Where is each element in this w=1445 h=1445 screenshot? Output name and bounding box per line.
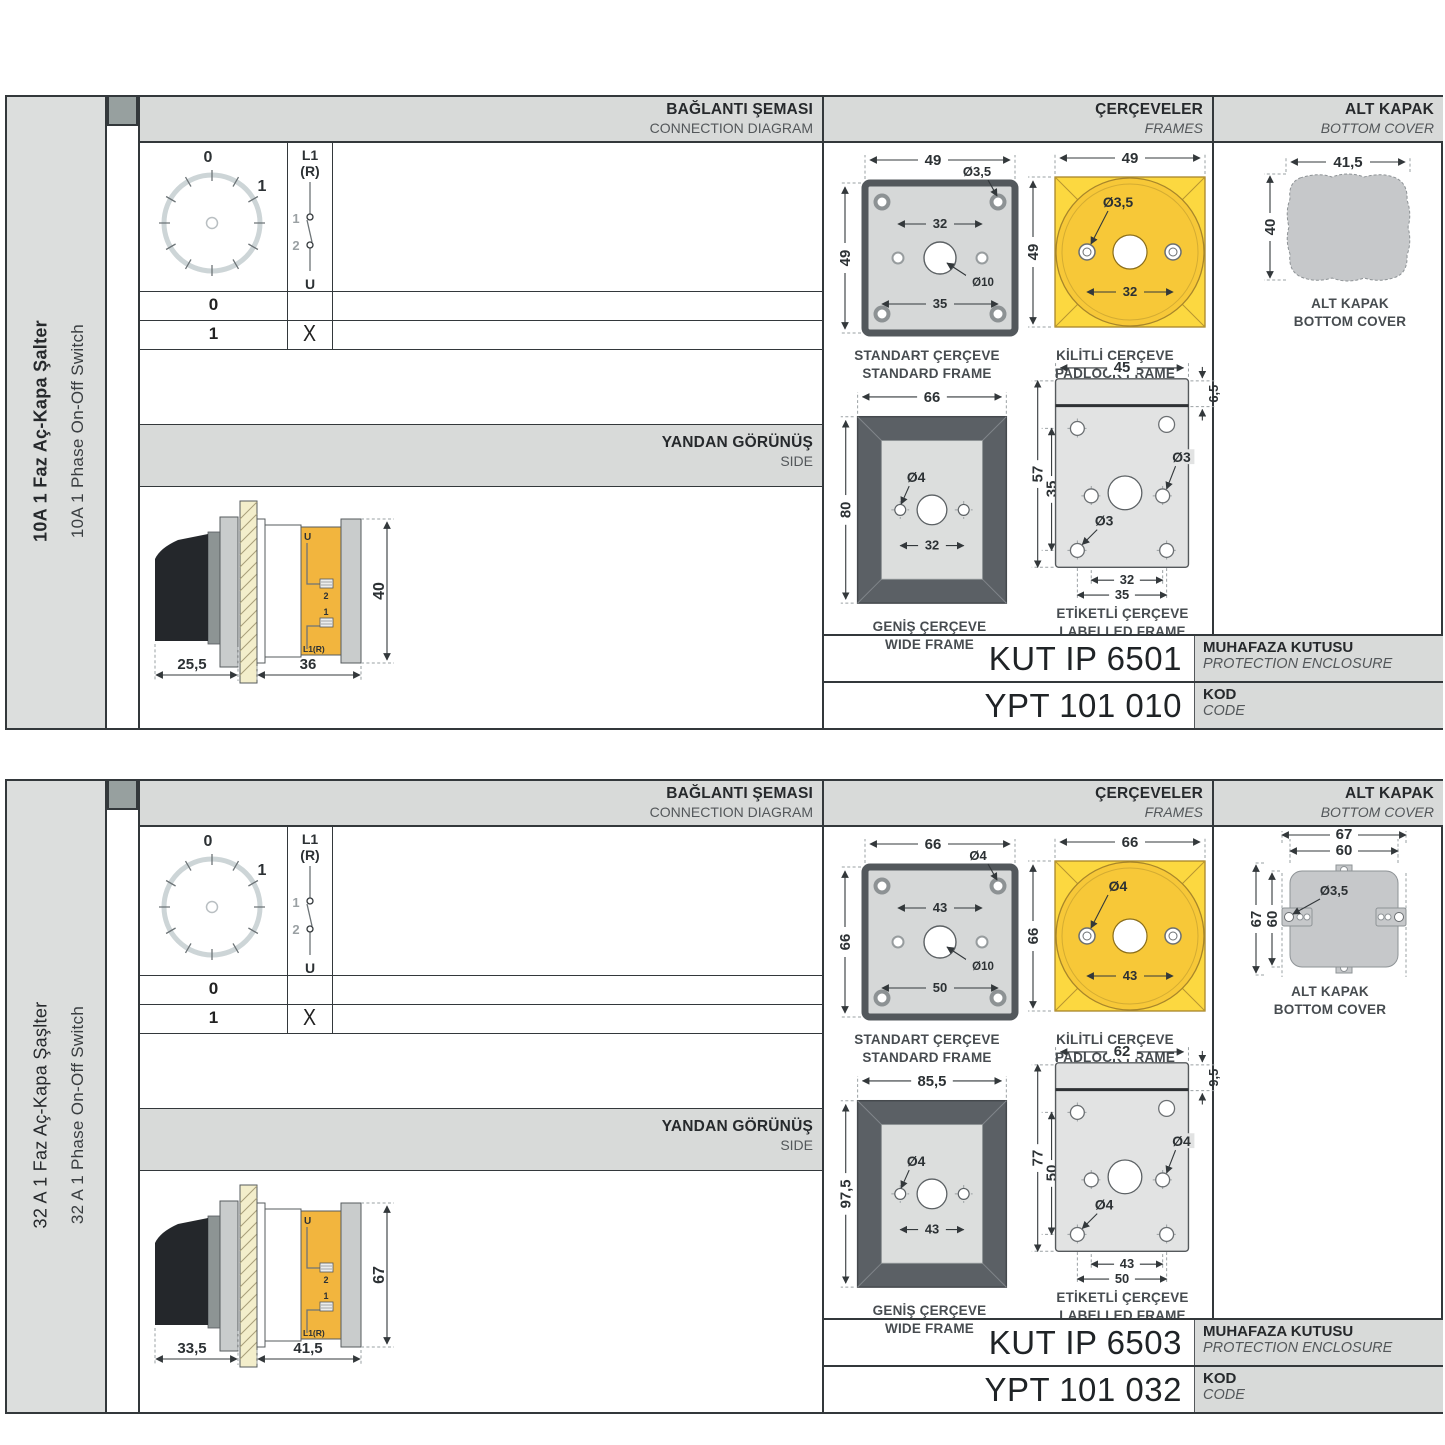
- terminal-l1r: L1(R): [303, 644, 325, 654]
- padlock-frame-drawing: 49 49 Ø3,5 32: [1020, 147, 1210, 343]
- dim-front-depth: 33,5: [177, 1340, 206, 1357]
- table-row-0-position: 0: [140, 291, 287, 320]
- side-view-header: YANDAN GÖRÜNÜŞ SIDE: [140, 424, 822, 487]
- dim-width: 85,5: [918, 1074, 947, 1090]
- terminal-r-label: (R): [300, 847, 319, 863]
- table-row-1-mark: X: [290, 1004, 328, 1033]
- label-en: CODE: [1203, 1387, 1443, 1403]
- header-tr: ÇERÇEVELER: [822, 101, 1203, 119]
- header-en: SIDE: [140, 1137, 813, 1153]
- product-section-32a: 32 A 1 Faz Aç-Kapa Şaşlter 32 A 1 Phase …: [5, 779, 1443, 1414]
- dim-width: 41,5: [1333, 154, 1362, 171]
- header-tr: BAĞLANTI ŞEMASI: [140, 785, 813, 803]
- dim-width: 66: [1122, 834, 1139, 851]
- switch-symbol: L1 (R) 1 2 U: [287, 143, 332, 291]
- bottom-cover-title: ALT KAPAK BOTTOM COVER: [1240, 983, 1420, 1018]
- header-tr: YANDAN GÖRÜNÜŞ: [140, 434, 813, 452]
- product-section-10a: 10A 1 Faz Aç-Kapa Şalter 10A 1 Phase On-…: [5, 95, 1443, 730]
- bottom-cover-title: ALT KAPAK BOTTOM COVER: [1260, 295, 1440, 330]
- labelled-frame-drawing: 45 6,5 57 35: [1025, 359, 1220, 602]
- center-hole: [917, 1179, 947, 1209]
- switch-symbol: L1 (R) 1 2 U: [287, 827, 332, 975]
- enclosure-code: KUT IP 6503: [822, 1320, 1194, 1365]
- front-plate: [220, 1201, 238, 1351]
- dial-position-1: 1: [258, 178, 267, 195]
- label-en: PROTECTION ENCLOSURE: [1203, 1340, 1443, 1356]
- product-title-tr-text: 32 A 1 Faz Aç-Kapa Şaşlter: [31, 1002, 52, 1229]
- dim-height-outer: 67: [1248, 911, 1265, 928]
- contact-2: [307, 242, 313, 248]
- label-en: PROTECTION ENCLOSURE: [1203, 656, 1443, 672]
- table-row-1-mark: X: [290, 320, 328, 349]
- contact-2: [307, 926, 313, 932]
- dim-label-strip: 9,5: [1206, 1069, 1221, 1087]
- screw-2: [320, 579, 333, 588]
- terminal-u: U: [304, 532, 311, 543]
- dim-label-strip: 6,5: [1206, 385, 1221, 403]
- title-tr: ETİKETLİ ÇERÇEVE: [1025, 605, 1220, 623]
- product-label-column: 10A 1 Faz Aç-Kapa Şalter 10A 1 Phase On-…: [7, 97, 107, 728]
- standard-frame-drawing: 66 66 Ø4 43: [832, 831, 1022, 1027]
- title-tr: STANDART ÇERÇEVE: [832, 347, 1022, 365]
- rotary-dial-diagram: 0 1: [142, 829, 285, 973]
- dim-hole-span: 32: [1123, 284, 1137, 299]
- center-hole: [924, 926, 956, 958]
- frame-body: [1056, 1063, 1189, 1251]
- dial-center: [207, 218, 218, 229]
- body: [265, 1209, 301, 1341]
- label-tr: KOD: [1203, 1370, 1443, 1387]
- product-title-en-text: 32 A 1 Phase On-Off Switch: [68, 1006, 88, 1224]
- contact-1: [307, 214, 313, 220]
- dim-height: 40: [371, 582, 388, 600]
- product-title-tr-text: 10A 1 Faz Aç-Kapa Şalter: [31, 320, 52, 542]
- header-en: FRAMES: [822, 120, 1203, 136]
- dim-width: 62: [1114, 1044, 1131, 1060]
- product-label-column: 32 A 1 Faz Aç-Kapa Şaşlter 32 A 1 Phase …: [7, 781, 107, 1412]
- dim-front-depth: 25,5: [177, 656, 206, 673]
- dim-width: 66: [924, 390, 941, 406]
- dial-position-0: 0: [204, 149, 213, 166]
- bottom-cover-drawing: 41,5 40: [1260, 152, 1440, 292]
- screw-1: [320, 1302, 333, 1311]
- header-en: CONNECTION DIAGRAM: [140, 120, 813, 136]
- dim-width: 66: [925, 836, 942, 853]
- rotary-dial-diagram: 0 1: [142, 145, 285, 289]
- center-hole: [1113, 919, 1147, 953]
- dim-hole: Ø4: [907, 469, 926, 485]
- dim-hole: Ø3,5: [1320, 883, 1348, 898]
- product-title-en-text: 10A 1 Phase On-Off Switch: [68, 324, 88, 538]
- dim-height: 40: [1262, 219, 1279, 236]
- header-en: BOTTOM COVER: [1212, 804, 1434, 820]
- wide-frame-drawing: 66 80 Ø4 32: [837, 385, 1022, 615]
- dim-hole: Ø4: [1109, 878, 1128, 894]
- standard-frame-drawing: 49 49 Ø3,5 32: [832, 147, 1022, 343]
- divider: [332, 827, 333, 1033]
- dim-hole-span: 32: [1120, 572, 1134, 587]
- title-tr: GENİŞ ÇERÇEVE: [837, 618, 1022, 636]
- body: [265, 525, 301, 657]
- enclosure-label: MUHAFAZA KUTUSU PROTECTION ENCLOSURE: [1194, 636, 1443, 681]
- standard-frame-title: STANDART ÇERÇEVE STANDARD FRAME: [832, 347, 1022, 382]
- center-hole: [924, 242, 956, 274]
- dim-hole-span: 43: [933, 900, 947, 915]
- header-tr: ALT KAPAK: [1212, 101, 1434, 119]
- dim-height: 66: [1025, 928, 1042, 945]
- terminal-l1r: L1(R): [303, 1328, 325, 1338]
- cover-body-group: [1282, 865, 1406, 973]
- dim-center-hole: Ø10: [972, 277, 994, 289]
- title-en: BOTTOM COVER: [1260, 313, 1440, 331]
- dim-height: 80: [839, 502, 855, 519]
- dim-hole: Ø3,5: [1103, 194, 1134, 210]
- dim-height: 97,5: [839, 1179, 855, 1208]
- catalog-page: 10A 1 Faz Aç-Kapa Şalter 10A 1 Phase On-…: [0, 0, 1445, 1445]
- table-row-1-position: 1: [140, 1004, 287, 1033]
- table-row-0-mark: [290, 291, 328, 320]
- table-row-0-position: 0: [140, 975, 287, 1004]
- section-content: BAĞLANTI ŞEMASI CONNECTION DIAGRAM ÇERÇE…: [138, 781, 1441, 1412]
- enclosure-row: KUT IP 6501 MUHAFAZA KUTUSU PROTECTION E…: [822, 634, 1443, 681]
- center-hole: [1108, 1160, 1142, 1194]
- dim-hole-left: Ø4: [1095, 1197, 1114, 1213]
- rear-plate: [341, 519, 361, 663]
- product-code-label: KOD CODE: [1194, 683, 1443, 728]
- terminal-l1-label: L1: [302, 831, 319, 847]
- dim-height: 49: [1025, 244, 1042, 261]
- title-en: STANDARD FRAME: [832, 365, 1022, 383]
- divider: [332, 143, 333, 349]
- wide-frame-drawing: 85,5 97,5 Ø4 43: [837, 1069, 1022, 1299]
- bottom-cover-header: ALT KAPAK BOTTOM COVER: [1212, 97, 1443, 143]
- dim-hole-right: Ø4: [1172, 1133, 1191, 1149]
- handle: [155, 534, 208, 641]
- enclosure-label: MUHAFAZA KUTUSU PROTECTION ENCLOSURE: [1194, 1320, 1443, 1365]
- dim-outer-span: 35: [933, 296, 947, 311]
- terminal-u: U: [304, 1216, 311, 1227]
- dim-width-outer: 67: [1336, 826, 1353, 843]
- front-plate: [220, 517, 238, 667]
- table-row-0-mark: [290, 975, 328, 1004]
- side-view-drawing: U 2 1 L1(R) 40 25,5 36: [140, 489, 822, 726]
- labelled-frame-drawing: 62 9,5 77 50: [1025, 1043, 1220, 1286]
- dim-corner-hole: Ø3,5: [963, 164, 991, 179]
- center-hole: [1113, 235, 1147, 269]
- row-line: [140, 1033, 822, 1034]
- dim-center-hole: Ø10: [972, 961, 994, 973]
- spacer: [257, 1203, 265, 1347]
- rear-plate: [341, 1203, 361, 1347]
- header-en: SIDE: [140, 453, 813, 469]
- contact-2-label: 2: [292, 238, 299, 253]
- header-en: BOTTOM COVER: [1212, 120, 1434, 136]
- title-tr: ETİKETLİ ÇERÇEVE: [1025, 1289, 1220, 1307]
- corner-marker: [107, 781, 138, 810]
- terminal-1: 1: [323, 607, 328, 617]
- title-en: STANDARD FRAME: [832, 1049, 1022, 1067]
- frames-header: ÇERÇEVELER FRAMES: [822, 781, 1212, 827]
- dim-body-depth: 36: [300, 656, 317, 673]
- terminal-l1-label: L1: [302, 147, 319, 163]
- title-tr: ALT KAPAK: [1240, 983, 1420, 1001]
- side-view-header: YANDAN GÖRÜNÜŞ SIDE: [140, 1108, 822, 1171]
- dim-outer-span: 50: [1115, 1271, 1129, 1286]
- bottom-cover-header: ALT KAPAK BOTTOM COVER: [1212, 781, 1443, 827]
- side-view-drawing: U 2 1 L1(R) 67 33,5 41,5: [140, 1173, 822, 1410]
- contact-1: [307, 898, 313, 904]
- dim-hole-span: 43: [1120, 1256, 1134, 1271]
- enclosure-row: KUT IP 6503 MUHAFAZA KUTUSU PROTECTION E…: [822, 1318, 1443, 1365]
- center-hole: [917, 495, 947, 525]
- dial-center: [207, 902, 218, 913]
- terminal-u-label: U: [305, 276, 315, 292]
- header-tr: ÇERÇEVELER: [822, 785, 1203, 803]
- screw-2: [320, 1263, 333, 1272]
- terminal-r-label: (R): [300, 163, 319, 179]
- label-tr: KOD: [1203, 686, 1443, 703]
- switch-blade: [307, 220, 312, 242]
- cover-body: [1287, 174, 1410, 281]
- title-tr: ALT KAPAK: [1260, 295, 1440, 313]
- dim-body-depth: 41,5: [293, 1340, 322, 1357]
- contact-1-label: 1: [292, 211, 299, 226]
- handle: [155, 1218, 208, 1325]
- title-en: BOTTOM COVER: [1240, 1001, 1420, 1019]
- header-tr: ALT KAPAK: [1212, 785, 1434, 803]
- header-tr: BAĞLANTI ŞEMASI: [140, 101, 813, 119]
- switch-blade: [307, 904, 312, 926]
- product-code: YPT 101 010: [822, 683, 1194, 728]
- label-tr: MUHAFAZA KUTUSU: [1203, 1323, 1443, 1340]
- dim-height-inner: 60: [1264, 911, 1281, 928]
- dim-hole-span: 32: [933, 216, 947, 231]
- dial-position-0: 0: [204, 833, 213, 850]
- dim-width-inner: 60: [1336, 842, 1353, 859]
- contact-2-label: 2: [292, 922, 299, 937]
- connection-diagram-header: BAĞLANTI ŞEMASI CONNECTION DIAGRAM: [140, 97, 822, 143]
- dim-outer-span: 35: [1115, 587, 1129, 602]
- product-code-row: YPT 101 032 KOD CODE: [822, 1365, 1443, 1412]
- label-en: CODE: [1203, 703, 1443, 719]
- dim-corner-hole: Ø4: [969, 848, 987, 863]
- dim-hole: Ø4: [907, 1153, 926, 1169]
- terminal-2: 2: [323, 1275, 328, 1285]
- dim-hole-span: 43: [925, 1222, 939, 1237]
- dim-height: 66: [837, 934, 854, 951]
- title-tr: GENİŞ ÇERÇEVE: [837, 1302, 1022, 1320]
- product-code-row: YPT 101 010 KOD CODE: [822, 681, 1443, 728]
- enclosure-code: KUT IP 6501: [822, 636, 1194, 681]
- padlock-frame-drawing: 66 66 Ø4 43: [1020, 831, 1210, 1027]
- header-en: CONNECTION DIAGRAM: [140, 804, 813, 820]
- product-code-label: KOD CODE: [1194, 1367, 1443, 1412]
- dim-hole-span: 43: [1123, 968, 1137, 983]
- dim-hole-left: Ø3: [1095, 513, 1114, 529]
- center-hole: [1108, 476, 1142, 510]
- terminal-1: 1: [323, 1291, 328, 1301]
- terminal-2: 2: [323, 591, 328, 601]
- bottom-cover-drawing: 67 60 67 60: [1248, 827, 1414, 979]
- screw-1: [320, 618, 333, 627]
- section-content: BAĞLANTI ŞEMASI CONNECTION DIAGRAM ÇERÇE…: [138, 97, 1441, 728]
- dim-outer-span: 50: [933, 980, 947, 995]
- spacer: [257, 519, 265, 663]
- dim-hole-span: 32: [925, 538, 939, 553]
- product-code: YPT 101 032: [822, 1367, 1194, 1412]
- terminal-u-label: U: [305, 960, 315, 976]
- dim-hole-right: Ø3: [1172, 449, 1191, 465]
- connection-diagram-header: BAĞLANTI ŞEMASI CONNECTION DIAGRAM: [140, 781, 822, 827]
- dim-width: 45: [1114, 360, 1131, 376]
- dial-position-1: 1: [258, 862, 267, 879]
- dim-width: 49: [925, 152, 942, 169]
- header-tr: YANDAN GÖRÜNÜŞ: [140, 1118, 813, 1136]
- standard-frame-title: STANDART ÇERÇEVE STANDARD FRAME: [832, 1031, 1022, 1066]
- dim-height: 49: [837, 250, 854, 267]
- title-tr: STANDART ÇERÇEVE: [832, 1031, 1022, 1049]
- frames-header: ÇERÇEVELER FRAMES: [822, 97, 1212, 143]
- dim-height: 67: [371, 1266, 388, 1284]
- corner-marker: [107, 97, 138, 126]
- row-line: [140, 349, 822, 350]
- table-row-1-position: 1: [140, 320, 287, 349]
- label-tr: MUHAFAZA KUTUSU: [1203, 639, 1443, 656]
- dim-width: 49: [1122, 150, 1139, 167]
- header-en: FRAMES: [822, 804, 1203, 820]
- contact-1-label: 1: [292, 895, 299, 910]
